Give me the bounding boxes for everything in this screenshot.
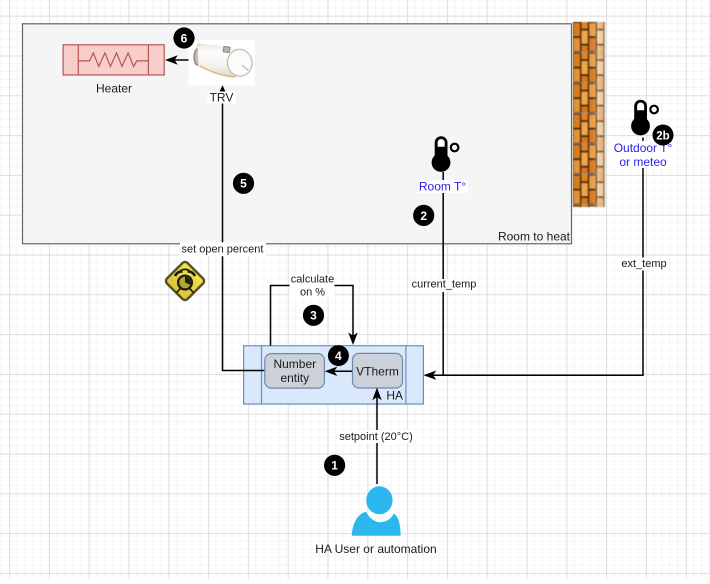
svg-text:Heater: Heater (96, 82, 132, 96)
svg-text:4: 4 (335, 349, 342, 363)
svg-text:on %: on % (300, 286, 325, 298)
svg-text:Number: Number (273, 357, 316, 371)
svg-text:calculate: calculate (291, 274, 334, 286)
svg-text:2: 2 (420, 209, 427, 223)
svg-text:2b: 2b (656, 130, 669, 142)
svg-text:5: 5 (240, 177, 247, 191)
svg-text:entity: entity (280, 371, 309, 385)
svg-text:ext_temp: ext_temp (621, 258, 666, 270)
svg-text:or meteo: or meteo (619, 155, 667, 169)
svg-text:Room to heat: Room to heat (498, 230, 571, 244)
svg-text:Room T°: Room T° (419, 180, 466, 194)
svg-text:current_temp: current_temp (412, 279, 477, 291)
svg-text:1: 1 (331, 459, 338, 473)
svg-text:VTherm: VTherm (356, 364, 399, 378)
svg-text:HA: HA (386, 389, 403, 403)
svg-text:HA User or automation: HA User or automation (315, 542, 436, 556)
svg-text:6: 6 (181, 31, 188, 45)
svg-text:set open percent: set open percent (182, 243, 264, 255)
svg-text:setpoint (20°C): setpoint (20°C) (339, 431, 413, 443)
svg-text:TRV: TRV (210, 91, 234, 105)
svg-text:3: 3 (310, 309, 317, 323)
